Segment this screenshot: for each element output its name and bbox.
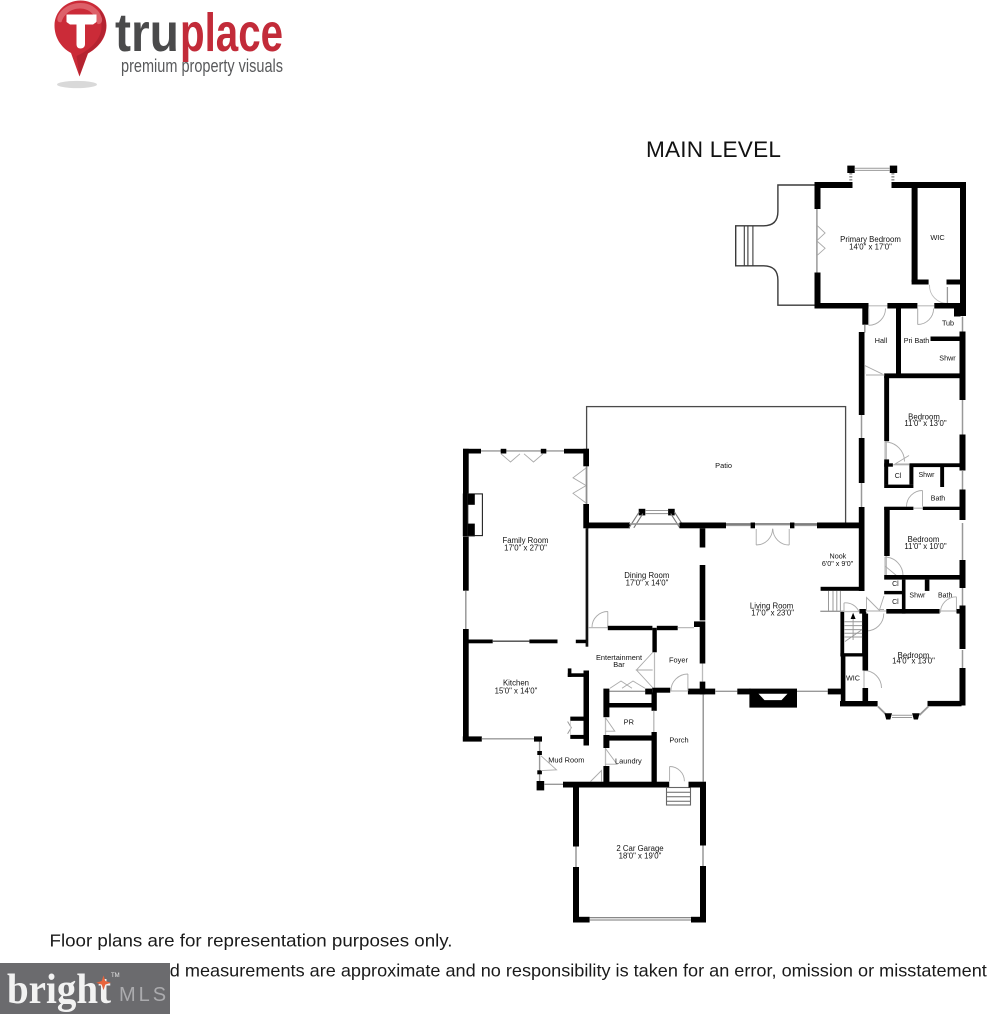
svg-text:Tub: Tub: [942, 319, 954, 328]
svg-text:WIC: WIC: [846, 674, 860, 683]
svg-text:MAIN LEVEL: MAIN LEVEL: [646, 137, 781, 162]
svg-text:Pri Bath: Pri Bath: [904, 336, 930, 345]
svg-text:Porch: Porch: [669, 736, 688, 745]
svg-text:17'0" x 27'0": 17'0" x 27'0": [504, 544, 547, 553]
svg-text:17'0" x 23'0": 17'0" x 23'0": [751, 608, 794, 617]
svg-text:tru: tru: [115, 3, 179, 63]
svg-text:d measurements are approximate: d measurements are approximate and no re…: [170, 961, 987, 981]
svg-text:6'0" x 9'0": 6'0" x 9'0": [822, 559, 854, 568]
svg-text:bright: bright: [7, 967, 111, 1013]
svg-text:Bath: Bath: [931, 496, 946, 503]
svg-text:WIC: WIC: [930, 233, 945, 242]
svg-text:Shwr: Shwr: [939, 354, 956, 363]
svg-text:Cl: Cl: [892, 581, 899, 588]
svg-text:TM: TM: [111, 973, 120, 979]
svg-text:Shwr: Shwr: [919, 472, 936, 479]
svg-text:17'0" x 14'0": 17'0" x 14'0": [626, 579, 669, 588]
svg-text:Bar: Bar: [613, 660, 625, 669]
svg-text:Shwr: Shwr: [909, 593, 926, 600]
svg-text:place: place: [180, 3, 283, 63]
svg-text:15'0" x 14'0": 15'0" x 14'0": [495, 687, 538, 696]
svg-text:11'0" x 10'0": 11'0" x 10'0": [904, 542, 946, 551]
svg-text:Cl: Cl: [892, 599, 899, 606]
svg-text:14'0" x 17'0": 14'0" x 17'0": [849, 243, 892, 252]
svg-text:Hall: Hall: [875, 336, 888, 345]
svg-text:MLS: MLS: [119, 984, 169, 1006]
svg-text:Mud Room: Mud Room: [548, 756, 584, 765]
svg-text:Floor plans are for representa: Floor plans are for representation purpo…: [50, 931, 453, 951]
svg-text:Bath: Bath: [938, 593, 953, 600]
svg-text:PR: PR: [624, 718, 634, 727]
svg-text:Patio: Patio: [715, 461, 732, 470]
svg-text:Foyer: Foyer: [669, 655, 688, 664]
svg-text:premium property visuals: premium property visuals: [121, 55, 283, 76]
svg-text:18'0" x 19'0": 18'0" x 19'0": [619, 851, 662, 860]
svg-text:14'0" x 13'0": 14'0" x 13'0": [892, 657, 935, 666]
svg-text:Cl: Cl: [895, 473, 902, 480]
svg-text:Laundry: Laundry: [615, 757, 642, 766]
svg-text:11'0" x 13'0": 11'0" x 13'0": [904, 419, 946, 428]
